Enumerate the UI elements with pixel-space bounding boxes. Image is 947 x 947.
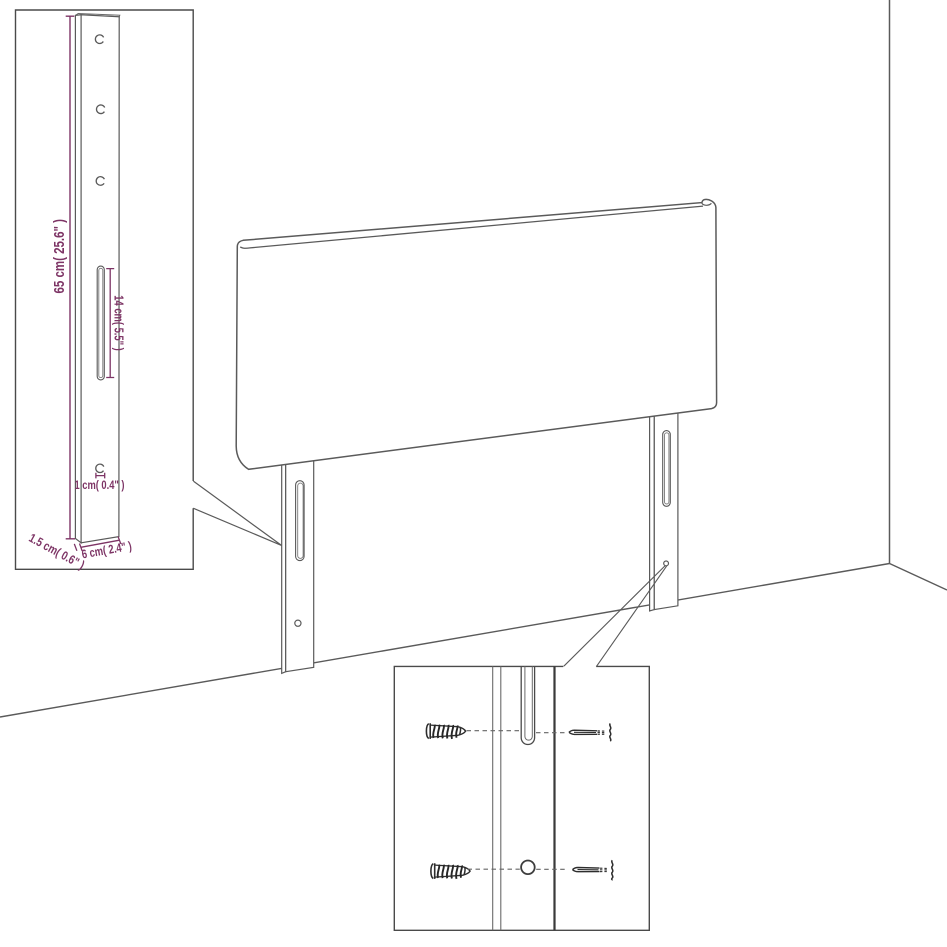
svg-text:1 cm( 0.4" ): 1 cm( 0.4" )	[75, 478, 125, 492]
svg-text:65 cm( 25.6" ): 65 cm( 25.6" )	[52, 219, 68, 294]
svg-text:14 cm( 5.5" ): 14 cm( 5.5" )	[112, 295, 127, 351]
